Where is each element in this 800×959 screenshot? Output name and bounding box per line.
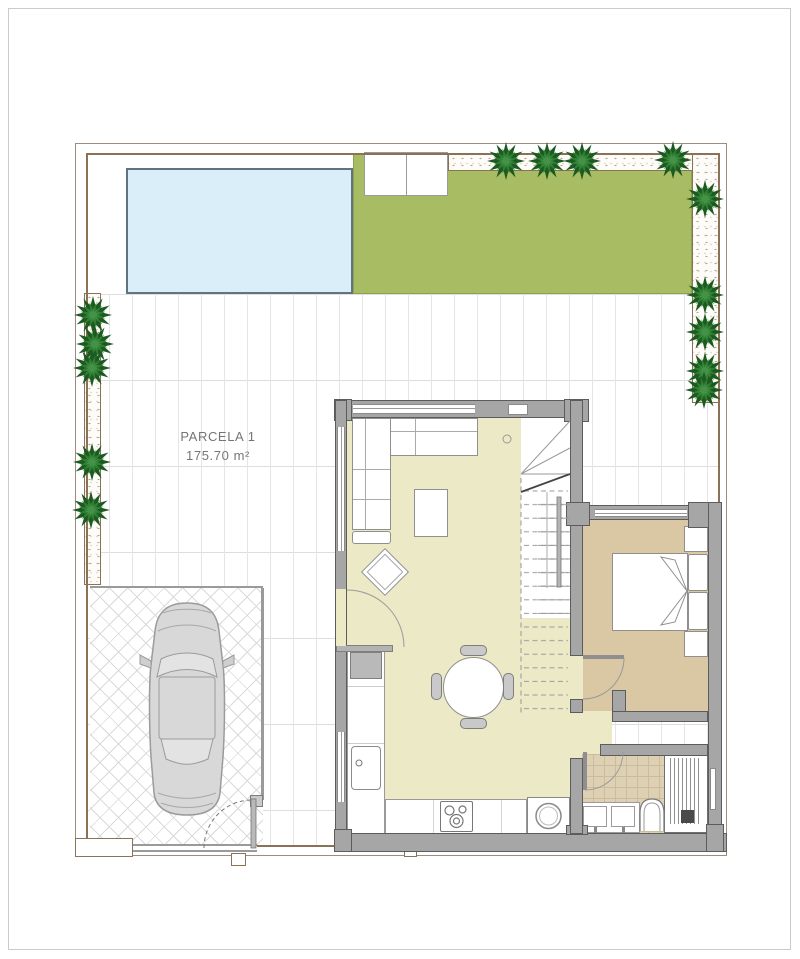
kitchen-stove (440, 801, 473, 832)
hall-to-bath-floor (583, 711, 612, 744)
coffee-table (414, 489, 448, 537)
shower-drain (681, 810, 694, 823)
living-window-left (337, 427, 345, 551)
pillar-bottom-left (334, 829, 352, 852)
dining-table (443, 657, 504, 718)
wall-niche-east (710, 768, 716, 810)
bed-pillow-top (688, 554, 708, 591)
dining-chair-east (503, 673, 514, 700)
wall-bathroom-north (600, 744, 708, 756)
staircase-area (521, 417, 570, 618)
living-window-top (353, 404, 475, 414)
parcel-area: 175.70 m² (128, 447, 308, 466)
bathroom-basin-left (583, 806, 607, 827)
entrance-sill (336, 645, 393, 652)
floor-plan: PARCELA 1 175.70 m² (0, 0, 800, 959)
driveway-gate-threshold (133, 844, 257, 852)
boundary-step (75, 838, 133, 857)
wall-bedroom-west (570, 519, 583, 656)
gate-post-marker-left (231, 853, 246, 866)
bed-mattress (612, 553, 688, 631)
parcel-name: PARCELA 1 (128, 428, 308, 447)
kitchen-fridge (350, 652, 382, 679)
wall-bottom (335, 833, 727, 852)
wall-bedroom-south (612, 711, 708, 722)
kitchen-window-left (337, 732, 345, 802)
wall-niche-top (508, 404, 528, 415)
sofa-armrest (352, 531, 391, 544)
nightstand-bottom (684, 631, 708, 657)
bed-pillow-bottom (688, 592, 708, 630)
parcel-label: PARCELA 1 175.70 m² (128, 428, 308, 466)
entrance-door-opening (336, 589, 346, 646)
bedroom-window (595, 509, 687, 517)
dining-chair-south (460, 718, 487, 729)
dining-chair-north (460, 645, 487, 656)
pillar-bottom-right (706, 824, 724, 852)
nightstand-top (684, 526, 708, 552)
sofa-left-section (352, 418, 391, 530)
parking-fence (261, 588, 264, 800)
washing-machine (527, 797, 570, 836)
bathroom-door-gap (583, 744, 600, 754)
dining-chair-west (431, 673, 442, 700)
kitchen-sink (351, 746, 381, 790)
wall-bathroom-west (570, 758, 583, 834)
gate-post (250, 795, 263, 807)
wall-bedroom-west-stub (570, 699, 583, 713)
bathroom-basin-right (611, 806, 635, 827)
parking-area (90, 586, 263, 845)
pillar-bedroom-nw (566, 502, 590, 526)
